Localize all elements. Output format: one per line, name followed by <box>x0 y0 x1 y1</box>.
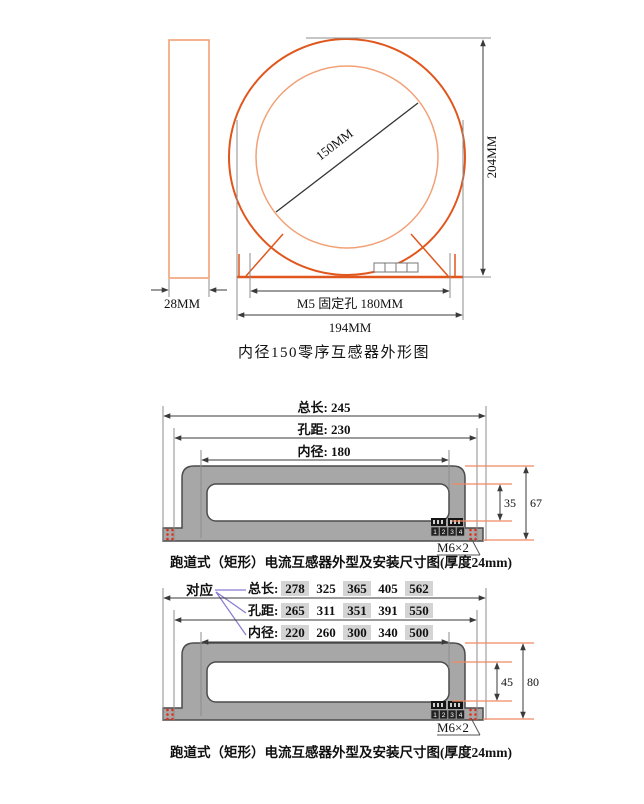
size-table: 总长: 278 325 365 405 562 孔距: 265 311 351 … <box>248 581 433 640</box>
figure3-caption: 跑道式（矩形）电流互感器外型及安装尺寸图(厚度24mm) <box>170 744 512 760</box>
row3-v1: 220 <box>285 625 305 640</box>
row1-v5: 562 <box>409 581 429 596</box>
technical-drawing-page: 28MM 150MM <box>0 0 644 804</box>
side-width-label: 28MM <box>164 296 201 311</box>
figure2-caption: 跑道式（矩形）电流互感器外型及安装尺寸图(厚度24mm) <box>170 554 512 570</box>
row2-v1: 265 <box>285 603 305 618</box>
row3-v3: 300 <box>347 625 367 640</box>
dim-28mm: 28MM <box>151 279 227 311</box>
terminal-2: 2 <box>442 529 446 536</box>
row1-v3: 365 <box>347 581 367 596</box>
terminal-4: 4 <box>459 529 463 536</box>
window-height-label: 45 <box>501 675 513 689</box>
total-width-label: 194MM <box>329 320 372 335</box>
row3-v5: 500 <box>409 625 429 640</box>
row3-v4: 340 <box>378 625 398 640</box>
correspondence-label: 对应 <box>186 582 213 598</box>
inner-diameter-label: 150MM <box>313 125 356 163</box>
row2-label: 孔距: <box>248 603 278 618</box>
figure1-caption: 内径150零序互感器外形图 <box>238 344 430 361</box>
dim-150mm: 150MM <box>276 103 418 212</box>
figure2-racetrack-ct: 1 2 3 4 总长: 245 孔距: 230 内径: 180 <box>163 400 542 570</box>
ct-window <box>207 484 449 521</box>
row3-v2: 260 <box>316 625 336 640</box>
row2-v3: 351 <box>347 603 367 618</box>
terminal-1: 1 <box>433 712 437 719</box>
row1-v2: 325 <box>316 581 336 596</box>
terminal-numbers: 1 2 3 4 <box>431 710 465 719</box>
height-label: 204MM <box>484 135 499 178</box>
figure1-zero-sequence-ct: 28MM 150MM <box>151 38 499 361</box>
terminal-3: 3 <box>450 529 454 536</box>
inner-diameter-label: 内径: 180 <box>297 444 350 459</box>
row1-v4: 405 <box>378 581 398 596</box>
mount-spec-label: M6×2 <box>437 720 469 735</box>
terminal-numbers: 1 2 3 4 <box>431 527 465 536</box>
correspondence-leader-lines <box>215 590 246 635</box>
body-height-label: 67 <box>530 496 542 510</box>
figure3-racetrack-ct-sizes: 对应 总长: 278 325 365 405 562 孔距: 265 311 3… <box>163 581 539 760</box>
row2-v4: 391 <box>378 603 398 618</box>
terminal-2: 2 <box>442 712 446 719</box>
window-height-label: 35 <box>504 496 516 510</box>
row2-v5: 550 <box>409 603 429 618</box>
body-height-label: 80 <box>527 675 539 689</box>
terminal-1: 1 <box>433 529 437 536</box>
row3-label: 内径: <box>248 625 278 640</box>
mount-holes-label: M5 固定孔 180MM <box>297 296 404 311</box>
row1-label: 总长: <box>248 581 278 596</box>
terminal-4: 4 <box>459 712 463 719</box>
ct-window <box>207 662 449 702</box>
side-view-outline <box>169 40 209 278</box>
row1-v1: 278 <box>285 581 305 596</box>
hole-distance-label: 孔距: 230 <box>297 422 350 437</box>
terminal-strip <box>374 263 418 272</box>
mount-spec-label: M6×2 <box>437 540 469 555</box>
total-length-label: 总长: 245 <box>297 400 351 415</box>
row2-v2: 311 <box>317 603 336 618</box>
dim-204mm: 204MM <box>306 38 499 277</box>
dim-m5-180mm: M5 固定孔 180MM <box>250 253 450 311</box>
terminal-3: 3 <box>450 712 454 719</box>
drawing-canvas: 28MM 150MM <box>0 0 644 804</box>
